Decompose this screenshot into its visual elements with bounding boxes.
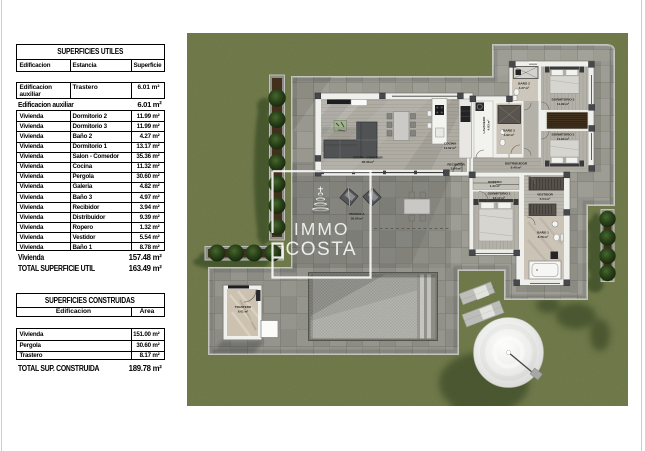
svg-text:VESTIDOR: VESTIDOR bbox=[537, 193, 554, 197]
svg-text:RECIBIDOR: RECIBIDOR bbox=[447, 162, 465, 166]
svg-text:6.01 m²: 6.01 m² bbox=[238, 309, 248, 313]
svg-text:DORMITORIO 3: DORMITORIO 3 bbox=[552, 98, 575, 102]
svg-text:IMMO: IMMO bbox=[294, 219, 350, 239]
svg-text:BAÑO 2: BAÑO 2 bbox=[518, 81, 530, 86]
svg-text:BAÑO 1: BAÑO 1 bbox=[537, 230, 549, 235]
svg-text:LAVADERO: LAVADERO bbox=[482, 116, 486, 133]
svg-text:30.60 m²: 30.60 m² bbox=[351, 216, 363, 220]
svg-text:TRASTERO: TRASTERO bbox=[235, 305, 252, 309]
svg-text:DORMITORIO 1: DORMITORIO 1 bbox=[488, 192, 511, 196]
svg-text:ESTAR - COMEDOR: ESTAR - COMEDOR bbox=[353, 156, 383, 160]
svg-text:35.36 m²: 35.36 m² bbox=[362, 160, 374, 164]
svg-text:4.83 m²: 4.83 m² bbox=[486, 120, 490, 131]
svg-text:DORMITORIO 2: DORMITORIO 2 bbox=[552, 133, 575, 137]
svg-text:4.92 m²: 4.92 m² bbox=[504, 133, 515, 137]
svg-text:3.94 m²: 3.94 m² bbox=[451, 167, 462, 171]
svg-text:4.27 m²: 4.27 m² bbox=[519, 86, 530, 90]
svg-text:8.78 m²: 8.78 m² bbox=[538, 235, 549, 239]
svg-text:9.40 m²: 9.40 m² bbox=[511, 166, 522, 170]
svg-text:13.17 m²: 13.17 m² bbox=[493, 196, 505, 200]
svg-text:PERGOLA: PERGOLA bbox=[349, 212, 365, 216]
svg-text:11.99 m²: 11.99 m² bbox=[557, 102, 569, 106]
svg-text:1.32 m²: 1.32 m² bbox=[490, 184, 501, 188]
svg-text:ROPERO: ROPERO bbox=[488, 180, 502, 184]
svg-text:11.32 m²: 11.32 m² bbox=[444, 146, 456, 150]
svg-text:5.54 m²: 5.54 m² bbox=[540, 197, 551, 201]
svg-text:COCINA: COCINA bbox=[444, 142, 457, 146]
svg-text:DISTRIBUIDOR: DISTRIBUIDOR bbox=[505, 161, 528, 165]
svg-text:BAÑO 3: BAÑO 3 bbox=[503, 128, 515, 133]
svg-text:11.94 m²: 11.94 m² bbox=[557, 137, 569, 141]
svg-text:COSTA: COSTA bbox=[286, 239, 358, 260]
